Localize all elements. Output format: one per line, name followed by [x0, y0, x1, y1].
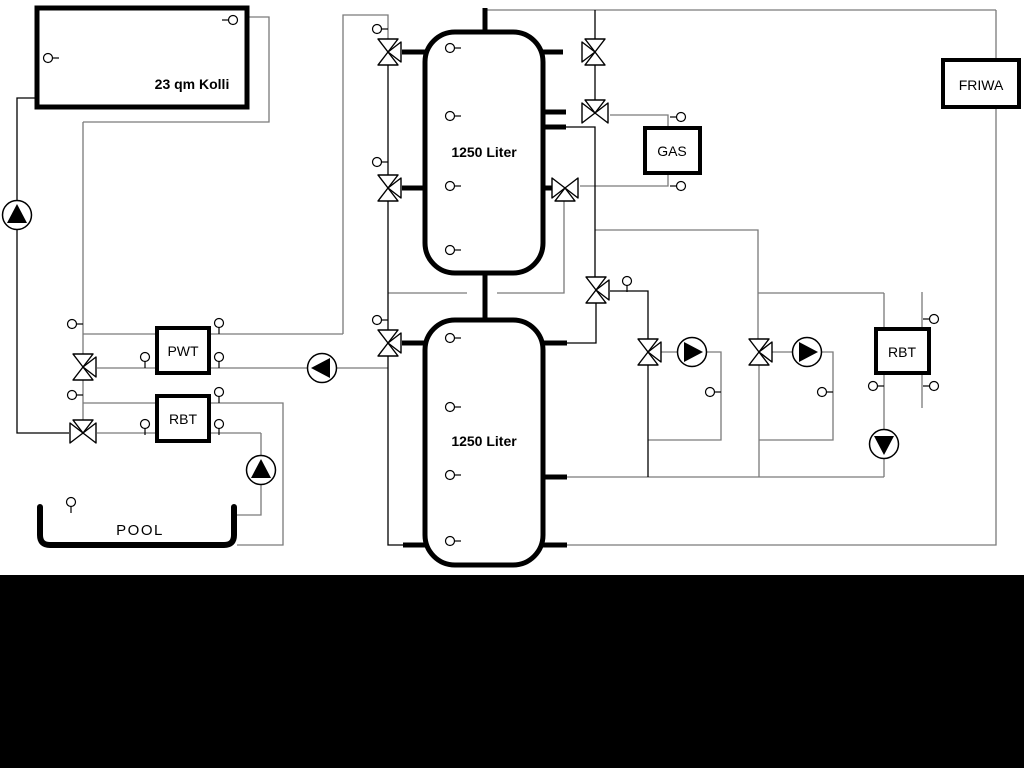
pump-icon-solar	[3, 201, 32, 230]
footer-black-bar	[0, 575, 1024, 768]
collector-label: 23 qm Kolli	[155, 76, 230, 92]
pump-icon-pool	[247, 456, 276, 485]
rbt-right-label: RBT	[888, 344, 916, 360]
pump-icon-circuit-2	[793, 338, 822, 367]
tank-top-label: 1250 Liter	[451, 144, 517, 160]
solar-collector-box	[37, 8, 247, 107]
hydraulic-schematic-screen: 23 qm Kolli 1250 Liter 1250 Liter PWT RB…	[0, 0, 1024, 768]
rbt-pool-label: RBT	[169, 411, 197, 427]
gas-label: GAS	[657, 143, 687, 159]
pump-icon-rbt-right	[870, 430, 899, 459]
hydraulic-schematic: 23 qm Kolli 1250 Liter 1250 Liter PWT RB…	[0, 0, 1024, 768]
pool-label: POOL	[116, 522, 164, 539]
tank-bottom-label: 1250 Liter	[451, 433, 517, 449]
pump-icon-pwt	[308, 354, 337, 383]
pwt-label: PWT	[167, 343, 199, 359]
friwa-label: FRIWA	[959, 77, 1004, 93]
pump-icon-circuit-1	[678, 338, 707, 367]
